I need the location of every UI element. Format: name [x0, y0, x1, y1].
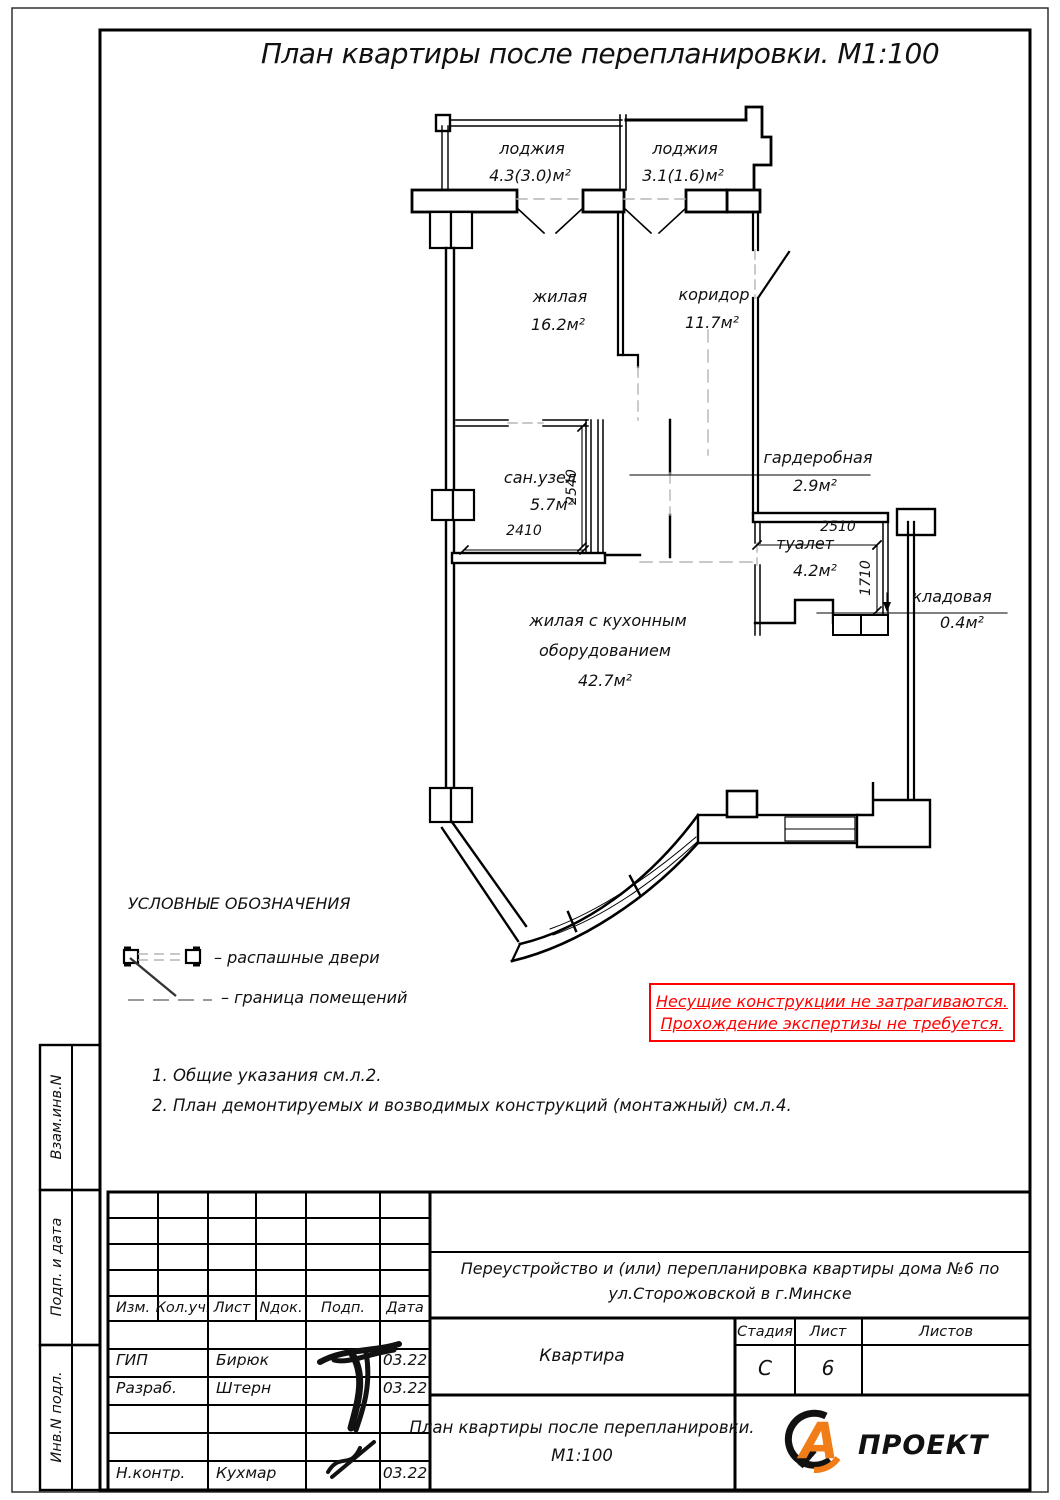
drawing-sheet: План квартиры после перепланировки. М1:1…	[0, 0, 1060, 1500]
room-area-toilet: 4.2м²	[793, 563, 837, 579]
room-area-wardrobe: 2.9м²	[793, 478, 837, 494]
stamp-stage-label: Стадия	[737, 1325, 793, 1340]
room-area-kitchen-living: 42.7м²	[578, 673, 632, 689]
legend-title: УСЛОВНЫЕ ОБОЗНАЧЕНИЯ	[128, 896, 350, 912]
sidebar-label-inv: Инв.N подл.	[50, 1371, 65, 1462]
interior-walls	[452, 212, 753, 563]
curved-bay-window	[442, 782, 930, 961]
warning-line-2: Прохождение экспертизы не требуется.	[661, 1014, 1004, 1033]
page-title: План квартиры после перепланировки. М1:1…	[170, 40, 1030, 68]
stamp-header-podp: Подп.	[321, 1301, 365, 1316]
room-label-loggia-1: лоджия	[499, 141, 565, 157]
stamp-sheets-label: Листов	[919, 1325, 973, 1340]
entrance-wall	[753, 212, 789, 513]
sidebar-label-vzam: Взам.инв.N	[50, 1075, 65, 1160]
room-area-loggia-1: 4.3(3.0)м²	[489, 168, 571, 184]
room-label-kitchen-living-1: жилая с кухонным	[529, 613, 686, 629]
room-area-living: 16.2м²	[531, 317, 585, 333]
stamp-doc-scale: М1:100	[551, 1448, 613, 1465]
note-1: 1. Общие указания см.л.2.	[152, 1068, 382, 1085]
left-exterior-wall	[430, 248, 474, 822]
room-label-wardrobe: гардеробная	[764, 450, 873, 466]
logo-letter: А	[796, 1412, 839, 1470]
stamp-role-gip: ГИП	[116, 1353, 148, 1369]
room-label-loggia-2: лоджия	[652, 141, 718, 157]
room-label-toilet: туалет	[776, 536, 834, 552]
room-label-living: жилая	[533, 289, 587, 305]
note-2: 2. План демонтируемых и возводимых конст…	[152, 1098, 792, 1115]
stamp-sheet-label: Лист	[810, 1325, 847, 1340]
stamp-sheet-value: 6	[822, 1358, 835, 1378]
room-area-corridor: 11.7м²	[685, 315, 739, 331]
stamp-stage-value: С	[758, 1358, 772, 1378]
dim-2410: 2410	[506, 524, 542, 538]
room-label-pantry: кладовая	[912, 589, 991, 605]
dim-2510: 2510	[820, 520, 856, 534]
stamp-name-gip: Бирюк	[216, 1353, 269, 1369]
warning-line-1: Несущие конструкции не затрагиваются.	[656, 992, 1008, 1011]
room-label-corridor: коридор	[678, 287, 749, 303]
stamp-role-nkontr: Н.контр.	[116, 1466, 185, 1482]
legend-symbol-swing-doors	[124, 948, 200, 996]
stamp-date-razrab: 03.22	[383, 1381, 427, 1397]
logo-text: ПРОЕКТ	[858, 1430, 990, 1461]
stamp-date-gip: 03.22	[383, 1353, 427, 1369]
legend-item-swing-doors: – распашные двери	[214, 950, 380, 966]
stamp-header-izm: Изм.	[116, 1301, 150, 1316]
stamp-header-kol: Кол.уч.	[156, 1301, 211, 1316]
stamp-object-name: Квартира	[539, 1348, 624, 1365]
room-area-loggia-2: 3.1(1.6)м²	[642, 168, 724, 184]
stamp-name-nkontr: Кухмар	[216, 1466, 276, 1482]
stamp-doc-title: План квартиры после перепланировки.	[409, 1420, 754, 1437]
stamp-date-nkontr: 03.22	[383, 1466, 427, 1482]
dim-2540: 2540	[565, 469, 579, 505]
stamp-header-list: Лист	[214, 1301, 251, 1316]
floor-plan	[412, 107, 1007, 961]
room-area-pantry: 0.4м²	[940, 615, 984, 631]
sidebar-label-podp: Подп. и дата	[50, 1218, 65, 1317]
stamp-header-data: Дата	[386, 1301, 424, 1316]
company-logo: А ПРОЕКТ	[770, 1408, 1000, 1478]
stamp-project-description: Переустройство и (или) перепланировка кв…	[442, 1257, 1018, 1307]
stamp-name-razrab: Штерн	[216, 1381, 271, 1397]
legend-item-room-boundary: – граница помещений	[221, 990, 407, 1006]
stamp-role-razrab: Разраб.	[116, 1381, 177, 1397]
warning-box: Несущие конструкции не затрагиваются. Пр…	[649, 983, 1015, 1042]
dim-1710: 1710	[859, 560, 873, 596]
room-label-kitchen-living-2: оборудованием	[539, 643, 671, 659]
stamp-header-ndok: Nдок.	[259, 1301, 302, 1316]
